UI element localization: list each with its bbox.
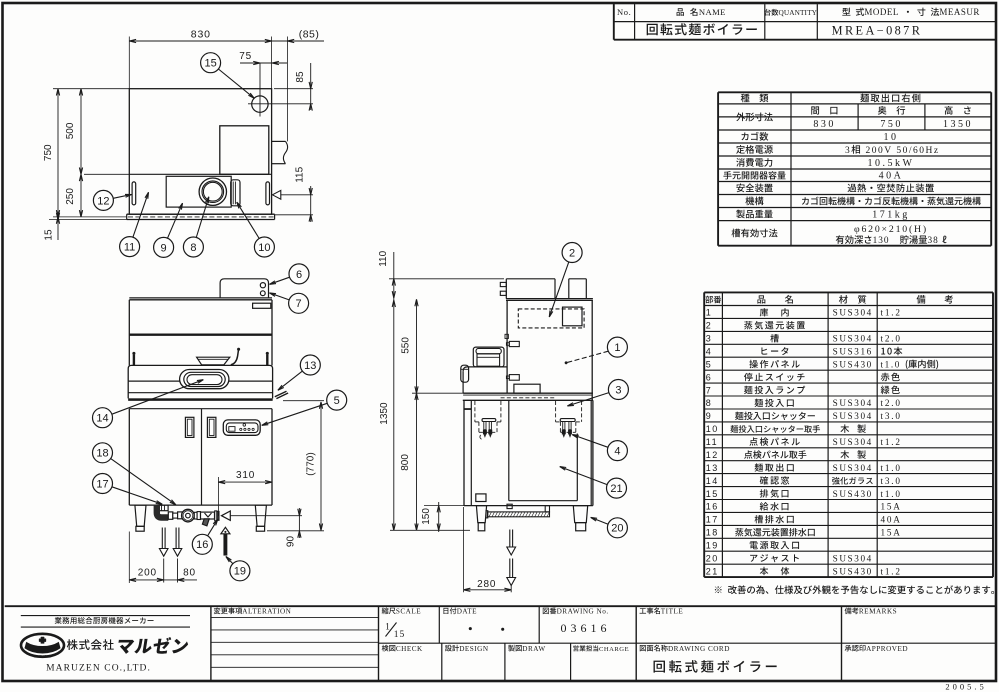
svg-text:t3.0: t3.0 [881,411,902,421]
svg-text:DRAW: DRAW [522,645,545,653]
svg-text:40A: 40A [881,515,902,525]
svg-text:SUS430: SUS430 [833,489,873,499]
svg-text:φ620×210(H): φ620×210(H) [854,224,928,235]
svg-text:3: 3 [706,334,713,344]
svg-text:20: 20 [706,553,719,563]
svg-text:SUS304: SUS304 [833,437,873,447]
svg-text:t1.2: t1.2 [881,566,902,576]
svg-text:130: 130 [873,236,900,246]
svg-text:150: 150 [421,508,432,525]
svg-text:SUS430: SUS430 [833,359,873,369]
svg-text:NAME: NAME [699,7,726,17]
svg-text:13: 13 [706,463,719,473]
svg-text:CHECK: CHECK [396,645,423,653]
svg-text:3: 3 [615,384,621,396]
svg-text:3: 3 [845,146,851,156]
svg-text:MEASUR: MEASUR [939,7,980,17]
svg-text:6: 6 [706,372,713,382]
svg-text:MARUZEN CO.,LTD.: MARUZEN CO.,LTD. [46,663,151,673]
svg-text:t1.0: t1.0 [881,463,902,473]
svg-text:115: 115 [295,166,306,182]
svg-text:8: 8 [706,398,713,408]
svg-text:13: 13 [304,360,316,372]
svg-text:21: 21 [706,566,719,576]
svg-text:(770): (770) [305,452,316,475]
svg-text:DRAWING No.: DRAWING No. [557,608,609,616]
svg-text:15A: 15A [881,502,902,512]
svg-text:17: 17 [96,478,108,490]
svg-text:85: 85 [295,71,306,83]
svg-text:7: 7 [706,385,713,395]
svg-text:11: 11 [124,242,135,254]
svg-text:9: 9 [161,242,167,254]
svg-text:1: 1 [614,342,620,354]
svg-text:SCALE: SCALE [396,608,421,616]
svg-text:14: 14 [96,413,108,425]
svg-text:CHARGE: CHARGE [599,646,629,653]
svg-text:40A: 40A [879,171,904,182]
svg-text:8: 8 [190,242,196,254]
svg-text:4: 4 [706,347,713,357]
svg-text:18: 18 [96,448,108,460]
svg-text:15: 15 [706,489,719,499]
svg-text:1350: 1350 [943,119,973,130]
svg-text:SUS304: SUS304 [833,553,873,563]
svg-text:SUS304: SUS304 [833,334,873,344]
svg-text:12: 12 [97,195,109,207]
svg-text:15A: 15A [881,528,902,538]
svg-text:t3.0: t3.0 [881,476,902,486]
svg-text:20: 20 [611,523,623,535]
svg-text:15: 15 [44,229,55,241]
svg-text:2: 2 [706,321,713,331]
svg-text:4: 4 [614,446,620,458]
svg-text:7: 7 [296,298,302,310]
svg-text:MODEL: MODEL [864,7,899,17]
svg-text:10.5kW: 10.5kW [868,158,915,169]
svg-text:200V 50/60Hz: 200V 50/60Hz [866,146,940,156]
svg-text:QUANTITY: QUANTITY [779,8,818,17]
svg-text:SUS304: SUS304 [833,398,873,408]
svg-text:03616: 03616 [561,621,611,635]
svg-text:APPROVED: APPROVED [866,645,908,653]
svg-text:DATE: DATE [457,608,477,616]
svg-text:5: 5 [706,359,713,369]
svg-text:SUS304: SUS304 [833,411,873,421]
svg-text:750: 750 [880,119,903,130]
svg-text:No.: No. [617,7,631,17]
svg-text:15: 15 [204,58,216,70]
svg-text:DRAWING CORD: DRAWING CORD [668,645,730,653]
svg-text:38: 38 [928,236,943,246]
svg-text:SUS304: SUS304 [833,463,873,473]
svg-text:10: 10 [884,132,899,143]
svg-text:2: 2 [569,247,575,259]
svg-text:t1.0: t1.0 [881,359,905,369]
svg-text:550: 550 [400,337,411,354]
svg-text:t2.0: t2.0 [881,334,902,344]
svg-text:ALTERATION: ALTERATION [242,608,291,616]
svg-text:19: 19 [706,541,719,551]
svg-text:DESIGN: DESIGN [459,645,489,653]
svg-text:(85): (85) [299,28,320,40]
svg-text:14: 14 [706,476,719,486]
svg-text:11: 11 [706,437,718,447]
svg-text:MARUZEN: MARUZEN [34,655,51,659]
svg-text:830: 830 [813,119,836,130]
svg-text:9: 9 [706,411,713,421]
svg-text:80: 80 [183,568,196,579]
svg-text:1: 1 [706,308,713,318]
svg-text:REMARKS: REMARKS [859,608,897,616]
svg-text:5: 5 [334,395,340,407]
svg-text:17: 17 [706,515,719,525]
svg-text:750: 750 [43,144,54,161]
svg-text:830: 830 [191,28,211,40]
svg-text:280: 280 [477,579,496,590]
svg-text:SUS430: SUS430 [833,566,873,576]
svg-text:TITLE: TITLE [661,608,684,616]
svg-text:15: 15 [394,630,406,640]
svg-text:800: 800 [400,454,411,471]
svg-text:250: 250 [65,188,76,205]
svg-text:171kg: 171kg [872,210,910,221]
svg-text:90: 90 [286,536,297,548]
svg-text:MREA−087R: MREA−087R [832,24,923,38]
svg-text:200: 200 [138,568,157,579]
svg-text:t2.0: t2.0 [881,398,902,408]
svg-text:110: 110 [378,250,389,266]
svg-text:SUS316: SUS316 [833,347,873,357]
svg-text:75: 75 [239,51,252,62]
svg-text:500: 500 [65,122,76,139]
svg-text:10: 10 [706,424,719,434]
svg-text:16: 16 [706,502,719,512]
svg-text:t1.2: t1.2 [881,437,902,447]
svg-text:6: 6 [296,269,302,281]
svg-text:12: 12 [706,450,719,460]
svg-text:1350: 1350 [379,402,390,425]
svg-text:21: 21 [610,483,622,495]
svg-text:18: 18 [706,528,719,538]
svg-text:t1.2: t1.2 [881,308,902,318]
svg-text:19: 19 [234,566,246,578]
svg-text:10: 10 [258,242,270,254]
svg-text:2005.5: 2005.5 [945,682,986,692]
svg-text:310: 310 [236,470,255,481]
svg-text:16: 16 [196,539,208,551]
svg-text:t1.0: t1.0 [881,489,902,499]
svg-text:SUS304: SUS304 [833,308,873,318]
